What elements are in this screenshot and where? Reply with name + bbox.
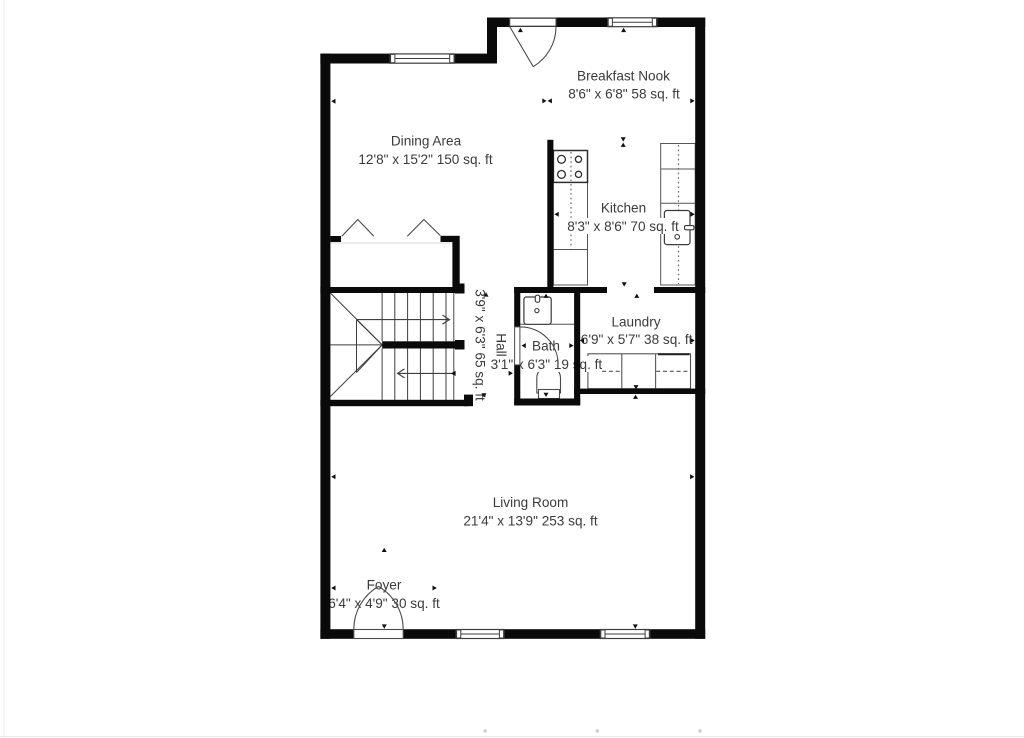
svg-text:Breakfast Nook: Breakfast Nook <box>577 68 670 83</box>
svg-text:3'1" x 6'3" 19 sq. ft: 3'1" x 6'3" 19 sq. ft <box>491 357 603 372</box>
svg-text:8'3" x 8'6" 70 sq. ft: 8'3" x 8'6" 70 sq. ft <box>567 219 679 234</box>
svg-text:6'9" x 5'7" 38 sq. ft: 6'9" x 5'7" 38 sq. ft <box>581 332 693 347</box>
svg-text:Kitchen: Kitchen <box>601 201 646 216</box>
svg-text:8'6" x 6'8" 58 sq. ft: 8'6" x 6'8" 58 sq. ft <box>568 86 680 101</box>
svg-text:21'4" x 13'9" 253 sq. ft: 21'4" x 13'9" 253 sq. ft <box>463 514 597 529</box>
svg-text:3'9" x 6'3" 65 sq. ft: 3'9" x 6'3" 65 sq. ft <box>473 289 488 401</box>
svg-text:Dining Area: Dining Area <box>391 133 462 148</box>
svg-text:6'4" x 4'9" 30 sq. ft: 6'4" x 4'9" 30 sq. ft <box>328 596 440 611</box>
svg-text:Living Room: Living Room <box>493 495 569 510</box>
svg-text:Hall: Hall <box>493 333 508 356</box>
svg-text:Laundry: Laundry <box>611 315 660 330</box>
svg-text:12'8" x 15'2" 150 sq. ft: 12'8" x 15'2" 150 sq. ft <box>358 152 492 167</box>
